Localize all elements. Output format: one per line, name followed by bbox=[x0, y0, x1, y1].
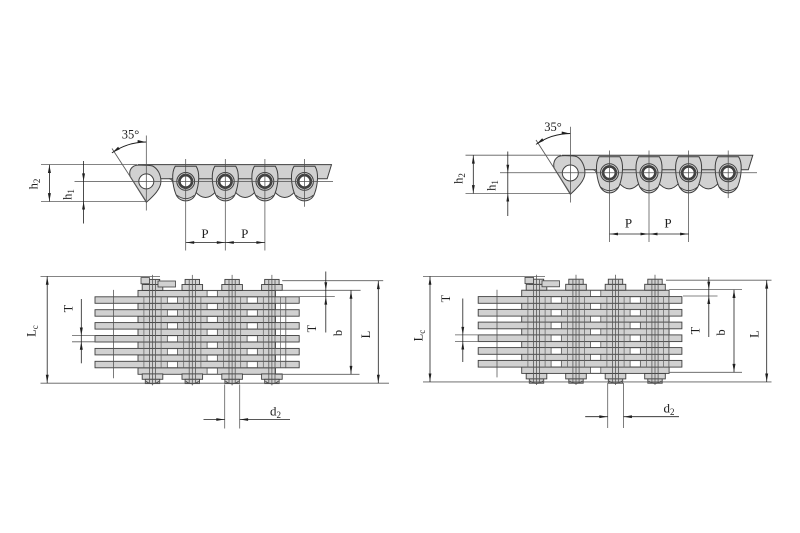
svg-text:Lc: Lc bbox=[412, 330, 428, 342]
svg-text:P: P bbox=[241, 226, 248, 241]
svg-text:L: L bbox=[748, 330, 762, 338]
svg-text:Lc: Lc bbox=[25, 325, 41, 337]
svg-text:d2: d2 bbox=[270, 404, 281, 421]
svg-text:P: P bbox=[664, 216, 671, 231]
svg-text:h1: h1 bbox=[485, 180, 501, 191]
svg-text:h1: h1 bbox=[61, 189, 77, 200]
svg-text:b: b bbox=[331, 330, 345, 336]
svg-text:T: T bbox=[439, 294, 453, 302]
svg-text:T: T bbox=[689, 326, 703, 334]
svg-text:P: P bbox=[625, 216, 632, 231]
svg-text:T: T bbox=[305, 324, 319, 332]
svg-text:35°: 35° bbox=[544, 120, 562, 134]
svg-text:d2: d2 bbox=[664, 401, 675, 418]
svg-text:P: P bbox=[201, 226, 208, 241]
svg-text:35°: 35° bbox=[122, 128, 140, 142]
svg-text:h2: h2 bbox=[27, 179, 43, 190]
svg-text:b: b bbox=[714, 329, 728, 335]
svg-text:h2: h2 bbox=[452, 173, 468, 184]
svg-text:L: L bbox=[359, 331, 373, 339]
svg-text:T: T bbox=[62, 304, 76, 312]
